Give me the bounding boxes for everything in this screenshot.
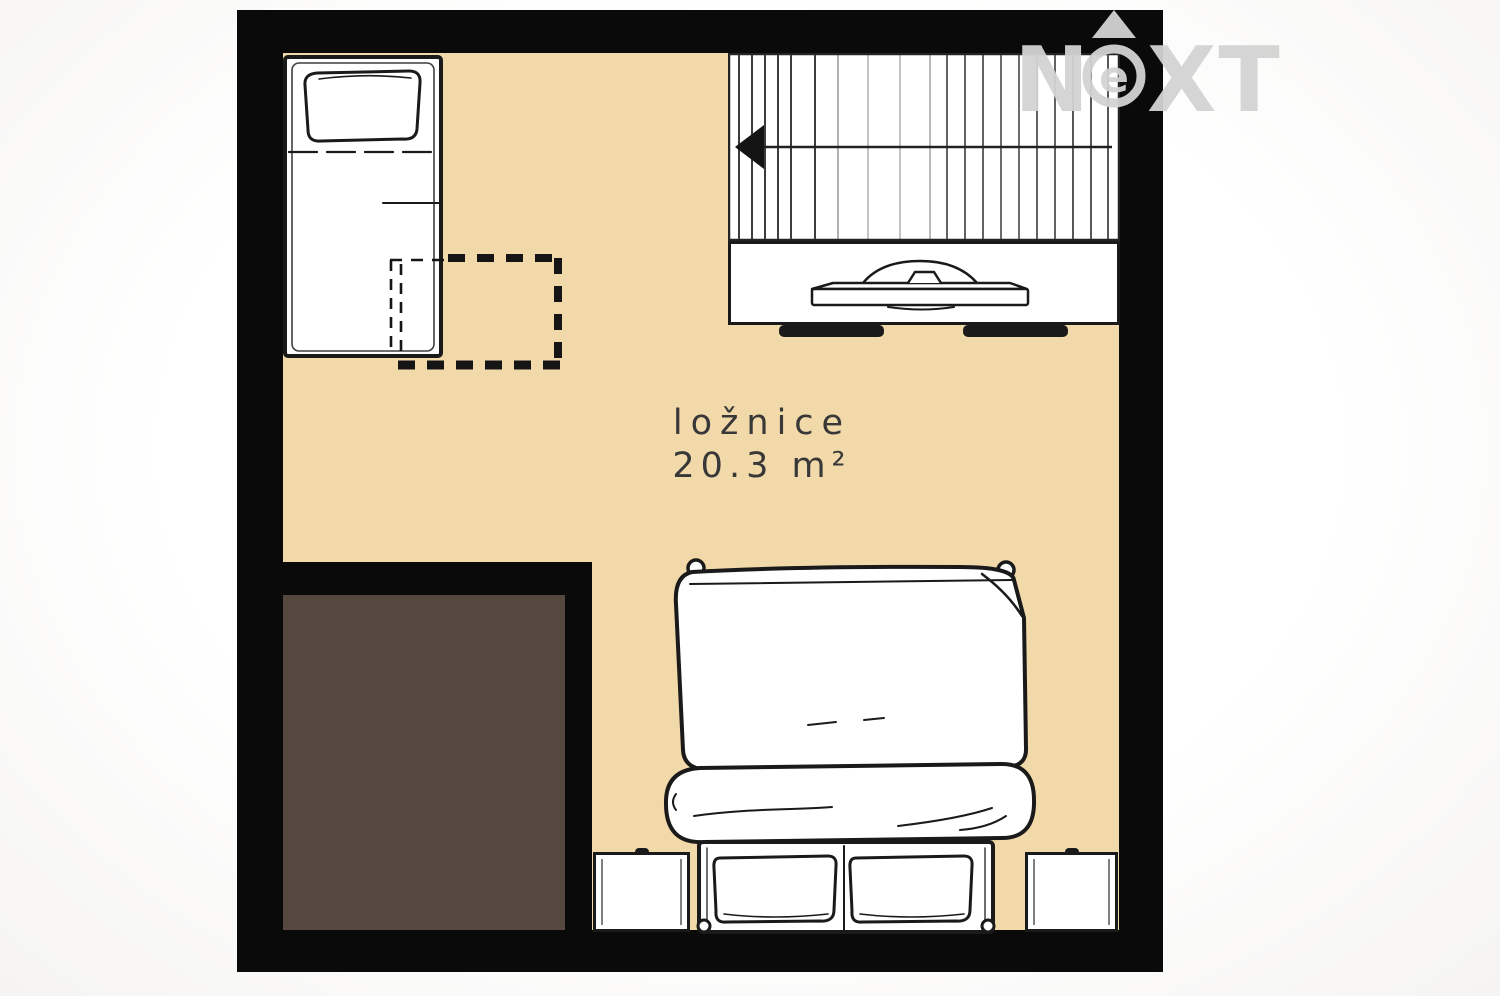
double-bed-pillow-left [714, 856, 836, 922]
double-bed-rolled-blanket [666, 764, 1034, 842]
room-name: ložnice [612, 402, 912, 444]
skylight-dashed-outline [388, 253, 564, 372]
room-label: ložnice 20.3 m² [612, 402, 912, 488]
double-bed [660, 558, 1040, 934]
nightstand-edge-line [1108, 859, 1110, 925]
void-wall-block [237, 562, 592, 972]
dresser-foot-mark-left [779, 325, 884, 337]
nightstand-edge-line [680, 859, 682, 925]
dresser [728, 241, 1120, 325]
void-area [283, 595, 565, 930]
nightstand-knob [635, 848, 649, 855]
nightstand-knob [1065, 848, 1079, 855]
double-bed-duvet [676, 567, 1026, 770]
dresser-foot-mark-right [963, 325, 1068, 337]
svg-text:e: e [1099, 52, 1129, 103]
nightstand-right [1025, 852, 1118, 932]
watermark-compass-e-icon: e [1080, 10, 1148, 112]
watermark-letters-xt: XT [1147, 36, 1282, 126]
single-bed-pillow [305, 71, 420, 141]
nightstand-left [593, 852, 690, 932]
floor-plan: ložnice 20.3 m² [237, 10, 1163, 972]
double-bed-pillow-right [850, 856, 972, 922]
room-area: 20.3 m² [612, 444, 912, 488]
floor-plan-page: ložnice 20.3 m² [0, 0, 1500, 996]
watermark-letter-n: N [1014, 36, 1089, 126]
nightstand-edge-line [1033, 859, 1035, 925]
nightstand-edge-line [601, 859, 603, 925]
